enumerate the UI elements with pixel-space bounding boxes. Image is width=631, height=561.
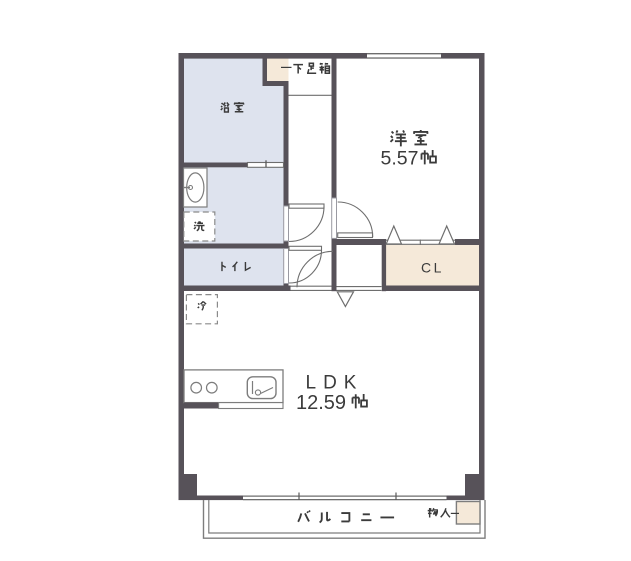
svg-text:LDK: LDK	[306, 372, 364, 393]
svg-text:12.59: 12.59	[296, 392, 346, 414]
svg-text:CL: CL	[421, 260, 444, 276]
svg-text:5.57: 5.57	[381, 148, 419, 170]
